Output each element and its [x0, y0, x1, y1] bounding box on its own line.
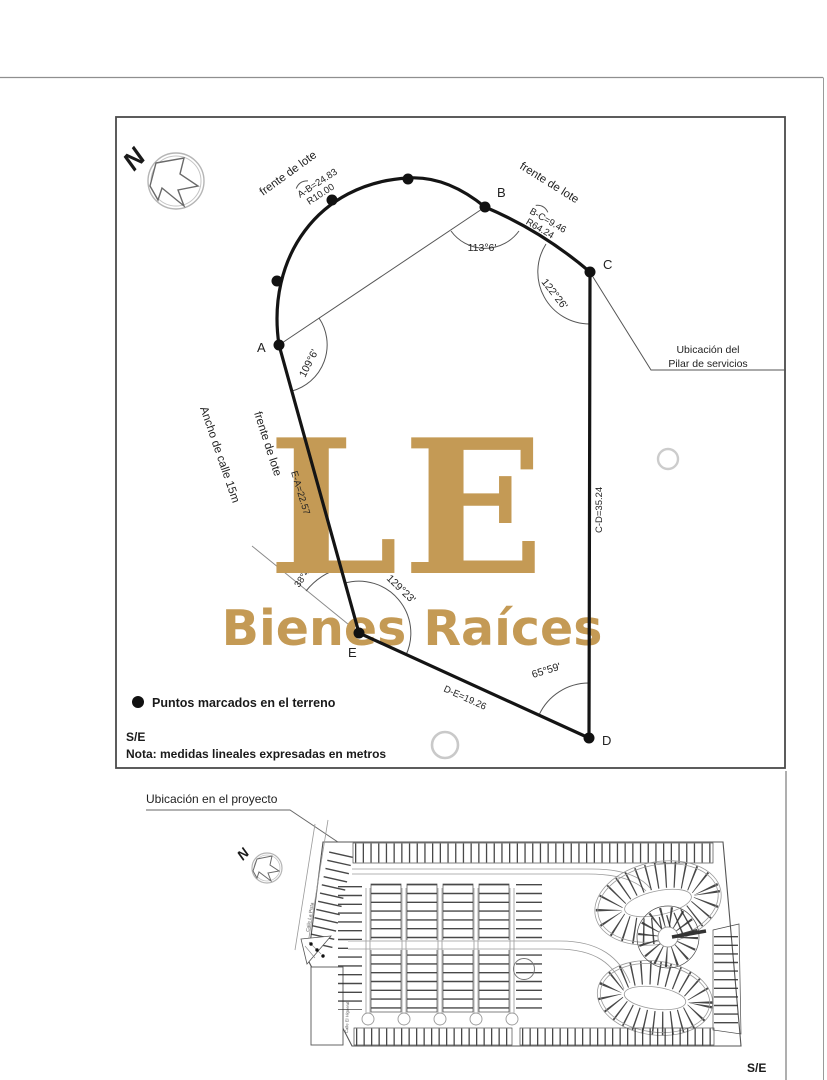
- cul-de-sac-bulb: [362, 1013, 374, 1025]
- cul-de-sac-bulb: [434, 1013, 446, 1025]
- point-label-a: A: [257, 340, 266, 355]
- point-dot-a: [274, 340, 285, 351]
- length-label-cd: C-D=35.24: [594, 487, 605, 533]
- map-scale-label: S/E: [747, 1061, 766, 1075]
- street-band: [348, 940, 562, 950]
- marker-dot: [321, 954, 324, 957]
- cul-de-sac-bulb: [506, 1013, 518, 1025]
- point-dot: [272, 276, 283, 287]
- angle-label-b: 113°6': [468, 242, 497, 254]
- marker-dot: [309, 942, 312, 945]
- point-dot-d: [584, 733, 595, 744]
- point-dot-c: [585, 267, 596, 278]
- point-label-b: B: [497, 185, 506, 200]
- watermark-brand: Bienes Raíces: [222, 600, 603, 657]
- empty-block: [311, 967, 343, 1045]
- point-dot-e: [354, 628, 365, 639]
- point-dot: [403, 174, 414, 185]
- subdivision-map: Calle La Pista Calle El Higueral: [295, 820, 741, 1046]
- point-label-e: E: [348, 645, 357, 660]
- plan-note: Nota: medidas lineales expresadas en met…: [126, 747, 386, 761]
- legend-label: Puntos marcados en el terreno: [152, 696, 336, 710]
- plan-scale-label: S/E: [126, 730, 145, 744]
- point-label-d: D: [602, 733, 611, 748]
- point-dot-b: [480, 202, 491, 213]
- pillar-label-line2: Pilar de servicios: [668, 358, 747, 370]
- legend-point-icon: [132, 696, 144, 708]
- project-map-title: Ubicación en el proyecto: [146, 792, 278, 806]
- marker-dot: [315, 948, 318, 951]
- pillar-label-line1: Ubicación del: [676, 344, 739, 356]
- watermark: LE Bienes Raíces: [222, 398, 603, 657]
- cul-de-sac-bulb: [398, 1013, 410, 1025]
- point-label-c: C: [603, 257, 612, 272]
- cul-de-sac-bulb: [470, 1013, 482, 1025]
- scanned-survey-page: N 38°4' LE Bienes Raíces: [0, 0, 827, 1080]
